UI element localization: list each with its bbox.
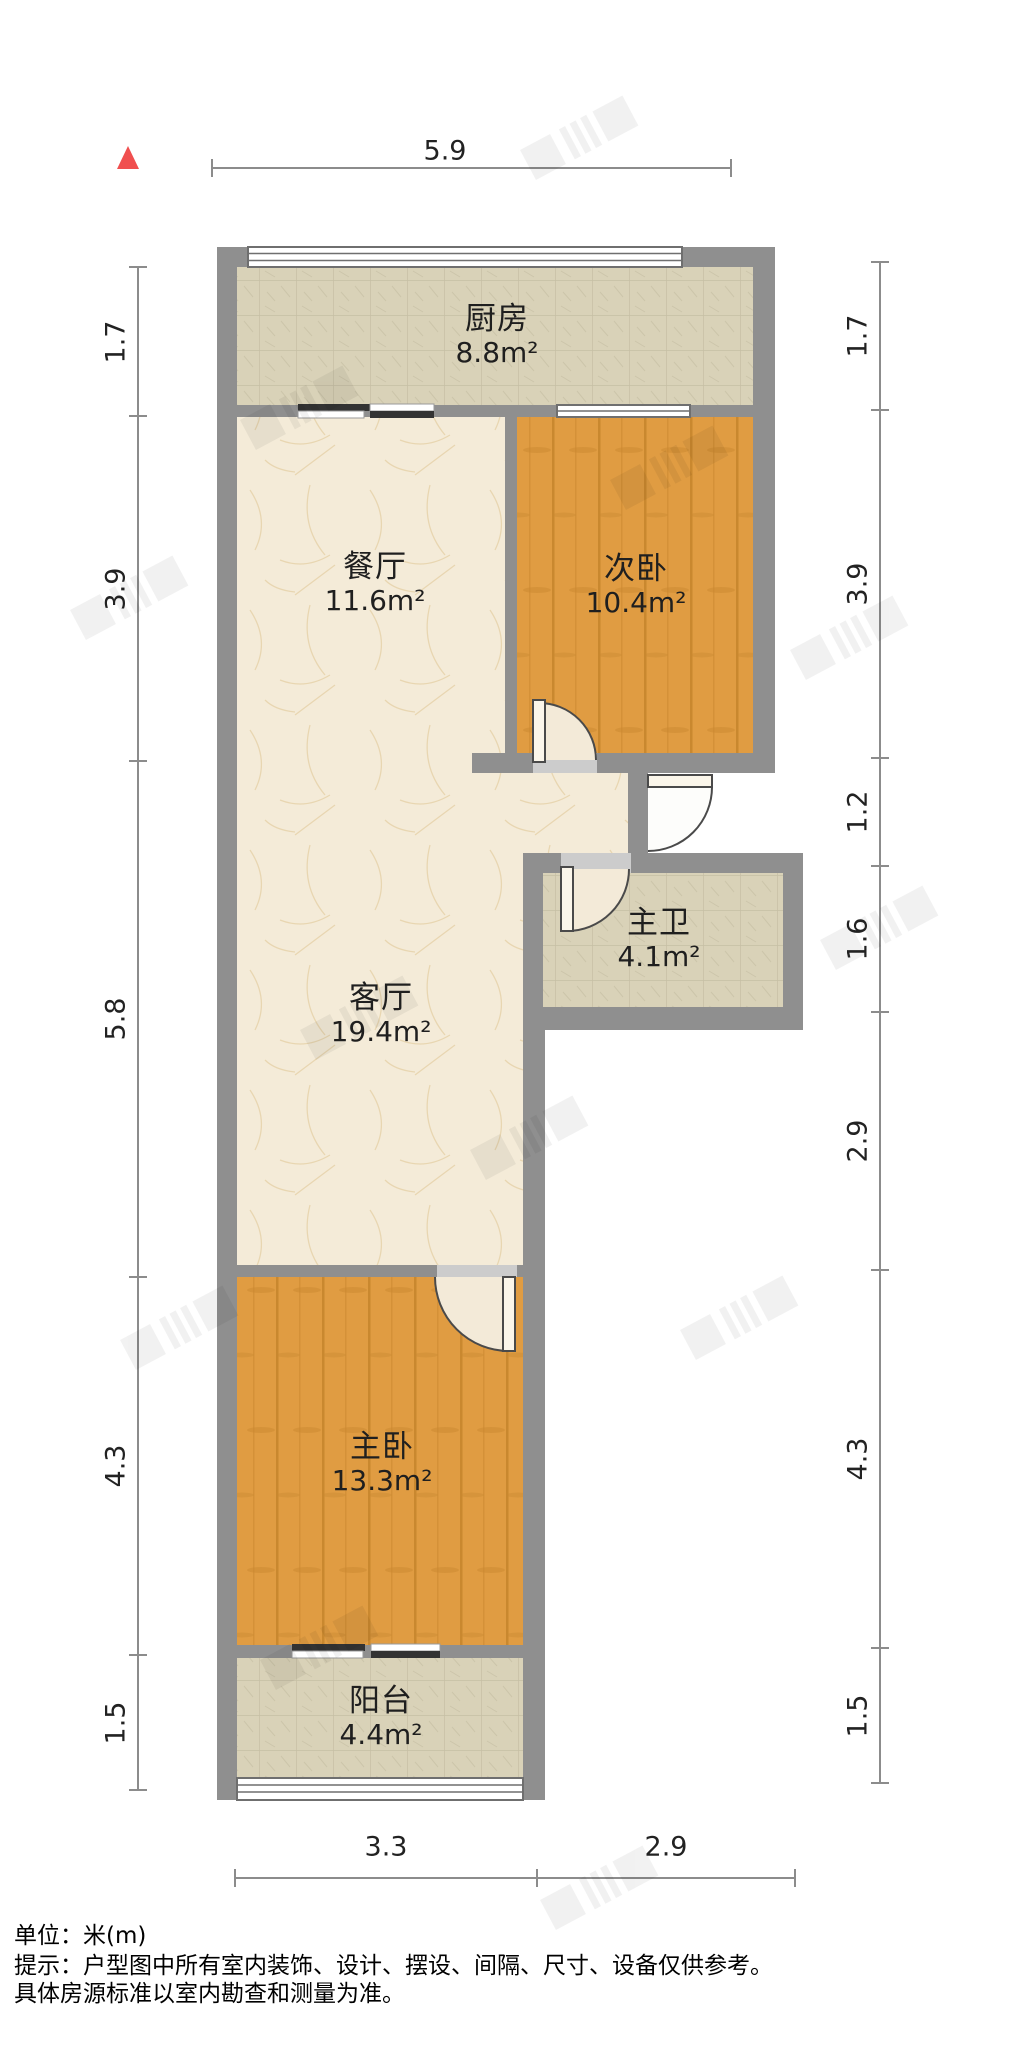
room-area: 10.4m² bbox=[586, 587, 687, 618]
dimension-line-top bbox=[212, 159, 731, 177]
dim-right-2: 1.2 bbox=[843, 791, 874, 834]
entry-door-leaf bbox=[648, 775, 712, 787]
room-name: 次卧 bbox=[586, 552, 687, 587]
floorplan-page: 厨房 8.8m² 餐厅 11.6m² 次卧 10.4m² 主卫 4.1m² 客厅… bbox=[0, 0, 1020, 2048]
dimension-line-left bbox=[129, 267, 147, 1790]
north-arrow-icon bbox=[117, 146, 139, 169]
room-area: 4.4m² bbox=[339, 1719, 422, 1750]
dim-left-1: 3.9 bbox=[101, 568, 132, 611]
wall-right-upper-exterior bbox=[753, 247, 775, 773]
room-label-master-bedroom: 主卧 13.3m² bbox=[332, 1430, 433, 1496]
room-name: 主卧 bbox=[332, 1430, 433, 1465]
second-bedroom-door-leaf bbox=[533, 700, 545, 762]
room-label-dining: 餐厅 11.6m² bbox=[325, 550, 426, 616]
dim-left-0: 1.7 bbox=[101, 321, 132, 364]
room-name: 阳台 bbox=[339, 1684, 422, 1719]
dim-right-1: 3.9 bbox=[843, 563, 874, 606]
room-label-kitchen: 厨房 8.8m² bbox=[455, 302, 538, 368]
wall-secondbedroom-bottom bbox=[472, 753, 775, 773]
room-label-second-bedroom: 次卧 10.4m² bbox=[586, 552, 687, 618]
dim-left-4: 1.5 bbox=[101, 1702, 132, 1745]
wall-bathroom-right bbox=[783, 873, 803, 1007]
wall-bathroom-bottom bbox=[523, 1007, 803, 1030]
kitchen-top-window bbox=[248, 247, 682, 267]
dim-right-4: 2.9 bbox=[843, 1120, 874, 1163]
room-area: 8.8m² bbox=[455, 337, 538, 368]
dimension-line-bottom bbox=[235, 1869, 795, 1887]
balcony-railing-window bbox=[237, 1778, 523, 1800]
dim-top-0: 5.9 bbox=[424, 136, 467, 167]
room-area: 13.3m² bbox=[332, 1465, 433, 1496]
room-label-balcony: 阳台 4.4m² bbox=[339, 1684, 422, 1750]
wall-dining-secondbedroom bbox=[505, 417, 517, 753]
dimension-line-right bbox=[871, 262, 889, 1783]
room-label-bathroom: 主卫 4.1m² bbox=[617, 906, 700, 972]
master-bedroom-door-opening bbox=[437, 1265, 517, 1277]
room-area: 19.4m² bbox=[331, 1016, 432, 1047]
dim-left-2: 5.8 bbox=[101, 998, 132, 1041]
dim-right-5: 4.3 bbox=[843, 1438, 874, 1481]
master-bedroom-door-leaf bbox=[503, 1277, 515, 1351]
footer-unit: 单位：米(m) bbox=[14, 1916, 146, 1950]
dim-bottom-0: 3.3 bbox=[365, 1832, 408, 1863]
room-name: 餐厅 bbox=[325, 550, 426, 585]
room-name: 厨房 bbox=[455, 302, 538, 337]
dim-right-0: 1.7 bbox=[843, 315, 874, 358]
room-area: 11.6m² bbox=[325, 585, 426, 616]
dim-bottom-1: 2.9 bbox=[645, 1832, 688, 1863]
room-area: 4.1m² bbox=[617, 941, 700, 972]
dim-right-3: 1.6 bbox=[843, 918, 874, 961]
entry-door bbox=[648, 775, 712, 851]
room-label-living: 客厅 19.4m² bbox=[331, 981, 432, 1047]
dim-right-6: 1.5 bbox=[843, 1695, 874, 1738]
room-name: 客厅 bbox=[331, 981, 432, 1016]
wall-left-exterior bbox=[217, 247, 237, 1800]
bathroom-door-leaf bbox=[561, 867, 573, 931]
hallway-floor bbox=[237, 773, 628, 853]
room-name: 主卫 bbox=[617, 906, 700, 941]
dim-left-3: 4.3 bbox=[101, 1445, 132, 1488]
wall-bathroom-left bbox=[523, 873, 543, 1007]
footer-tip-line2: 具体房源标准以室内勘查和测量为准。 bbox=[14, 1974, 405, 2008]
